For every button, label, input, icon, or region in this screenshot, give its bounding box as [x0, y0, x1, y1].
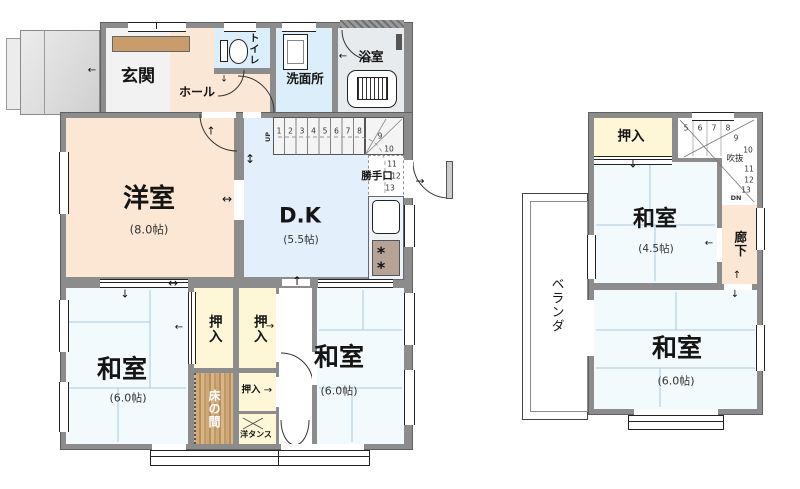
- step-number-2f: 6: [698, 124, 703, 132]
- wardrobe-box: [239, 414, 276, 444]
- bathtub-grate: [357, 77, 388, 100]
- hall-arrow: ↑: [206, 126, 215, 137]
- toilet-bowl: [229, 39, 248, 64]
- genkan-step: [112, 36, 190, 52]
- step-number-2f: 10: [743, 146, 753, 154]
- step-number: 1: [277, 127, 282, 135]
- kitchen-sink: [372, 200, 400, 234]
- tatami-right-window-upper: [404, 293, 415, 345]
- tatami-large-size: (6.0帖): [657, 376, 694, 387]
- toilet-window: [224, 22, 256, 32]
- stairs-run: [273, 117, 365, 155]
- step-number: 11: [387, 160, 397, 168]
- western-label: 洋室: [123, 186, 175, 212]
- washroom-label: 洗面所: [286, 73, 324, 86]
- backdoor-opening: [404, 160, 413, 198]
- tatami-left-window-upper: [59, 300, 69, 352]
- entrance-door-divider: [156, 23, 157, 29]
- step-number: 6: [334, 127, 339, 135]
- bath-label: 浴室: [358, 51, 383, 64]
- bath-top-hatch-wall: [340, 20, 404, 28]
- corridor-exterior-door: [281, 444, 309, 450]
- backdoor-label: 勝手口: [361, 171, 393, 182]
- stairs-down-label: DN: [731, 195, 742, 202]
- corridor-2f-window: [756, 208, 765, 250]
- closet1-fusuma: [188, 292, 196, 364]
- backdoor-arrow: →: [415, 176, 424, 187]
- dk-window: [404, 205, 415, 247]
- step-number: 3: [300, 127, 305, 135]
- closet1-label: 押入: [206, 315, 220, 344]
- western-tatami-arrow: ↔: [168, 277, 178, 289]
- dk-label: D.K: [279, 206, 321, 227]
- tatami-small-arrow: ←: [705, 239, 713, 249]
- western-dk-arrow: ↔: [222, 193, 232, 205]
- stairs-up-label: UP: [265, 132, 272, 142]
- tatami-right-window-lower: [404, 370, 415, 425]
- toilet-label: トイレ: [247, 33, 257, 66]
- dk-corridor-arrow: ↑: [292, 275, 302, 287]
- dk-size: (5.5帖): [283, 235, 318, 246]
- tatami-large-label: 和室: [652, 336, 702, 361]
- western-room-window: [59, 152, 69, 214]
- stairwell-2f-window: [692, 112, 734, 121]
- toilet-arrow: ↓: [220, 76, 228, 85]
- porch-divider: [44, 30, 45, 115]
- step-number: 8: [357, 127, 362, 135]
- veranda-door: [587, 300, 594, 356]
- step-number: 12: [391, 172, 401, 180]
- washroom-window: [282, 22, 316, 32]
- corridor-1f: [279, 288, 312, 444]
- corridor-2f-arrow: ↑: [733, 271, 741, 281]
- hall-dk-opening: [243, 112, 261, 118]
- hall-label: ホール: [179, 86, 215, 98]
- step-number: 7: [346, 127, 351, 135]
- entrance-door: [128, 22, 186, 32]
- wardrobe-label: 洋タンス: [240, 431, 272, 439]
- tatami-left-size: (6.0帖): [109, 393, 146, 404]
- bay-window-right: [278, 450, 370, 466]
- closet2-label: 押入: [251, 315, 265, 344]
- tatami-small-window: [587, 235, 596, 279]
- closet3-label: 押入: [241, 385, 260, 395]
- tatami-small-size: (4.5帖): [638, 244, 673, 255]
- step-number-2f: 11: [744, 165, 754, 173]
- tatami-small-corridor-opening: [717, 228, 722, 262]
- closet-2f-label: 押入: [618, 130, 645, 144]
- hall-dk-arrow: ↕: [245, 153, 255, 165]
- washing-machine-drum: [287, 40, 304, 64]
- closet3-front: [276, 377, 279, 407]
- step-number-2f: 9: [734, 134, 739, 142]
- closet1-arrow: ←: [175, 323, 183, 333]
- tatami-right-size: (6.0帖): [320, 386, 357, 397]
- hall-western-opening: [202, 112, 236, 118]
- western-size: (8.0帖): [130, 224, 169, 236]
- tatami-left-arrow: ↓: [120, 289, 129, 300]
- void-label: 吹抜: [726, 155, 743, 164]
- tatami-small-label: 和室: [633, 209, 677, 231]
- tatami-large-window: [756, 325, 765, 371]
- closet3-arrow: →: [264, 386, 272, 396]
- bay-window-left: [150, 450, 282, 466]
- genkan-label: 玄関: [121, 69, 155, 86]
- step-number: 4: [311, 127, 316, 135]
- toilet-tank: [220, 40, 228, 62]
- closet-2f-arrow: ↓: [628, 159, 637, 170]
- bay-window-2f: [628, 415, 724, 430]
- step-number-2f: 5: [684, 124, 689, 132]
- closet2-arrow: →: [266, 322, 274, 332]
- tatami-right-fusuma: [318, 279, 393, 288]
- step-number-2f: 13: [741, 186, 751, 194]
- veranda-label: ベランダ: [550, 277, 563, 333]
- tatami-left-window-lower: [59, 382, 69, 432]
- step-number-2f: 7: [712, 124, 717, 132]
- tokonoma-label: 床の間: [208, 390, 220, 429]
- floor-plan-canvas: * * 玄関 ホール トイレ 洗面所 浴室 D.K (5.5帖) 洋室 (8.0…: [0, 0, 800, 489]
- western-dk-opening: [234, 180, 244, 220]
- tatami-right-label: 和室: [314, 345, 364, 370]
- corridor-tatami-arrow: ↓: [731, 290, 739, 300]
- backdoor-leaf: [446, 161, 453, 199]
- step-number-2f: 12: [744, 176, 754, 184]
- tatami-left-label: 和室: [97, 357, 147, 382]
- step-number: 13: [385, 184, 395, 192]
- step-number: 10: [384, 145, 394, 153]
- water-heater: [396, 34, 402, 50]
- step-number: 5: [323, 127, 328, 135]
- corridor-2f-label: 廊下: [733, 231, 746, 258]
- stove-burner-icon: *: [377, 260, 385, 276]
- porch-step: [6, 38, 21, 110]
- entrance-arrow: ←: [88, 66, 96, 76]
- bath-arrow: ←: [339, 52, 347, 62]
- step-number-2f: 8: [726, 124, 731, 132]
- step-number: 9: [378, 132, 383, 140]
- closet2-front: [276, 294, 279, 362]
- step-number: 2: [288, 127, 293, 135]
